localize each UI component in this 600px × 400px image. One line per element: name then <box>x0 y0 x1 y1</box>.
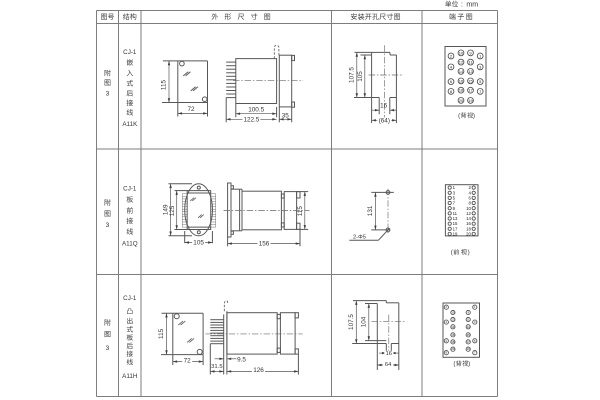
svg-text:126: 126 <box>253 367 264 374</box>
svg-text:13: 13 <box>467 325 470 329</box>
svg-text:10: 10 <box>451 311 454 315</box>
svg-text:131: 131 <box>367 205 374 216</box>
svg-text:(64): (64) <box>379 117 390 124</box>
svg-text:19: 19 <box>467 347 470 351</box>
svg-text:15: 15 <box>468 78 473 83</box>
svg-text:19: 19 <box>468 98 473 103</box>
svg-text:72: 72 <box>184 358 192 365</box>
svg-text:14: 14 <box>451 325 454 329</box>
svg-text:12: 12 <box>459 60 464 65</box>
svg-text:64: 64 <box>385 362 392 368</box>
svg-text:16: 16 <box>386 351 392 357</box>
svg-text:3: 3 <box>106 90 110 97</box>
svg-text:20: 20 <box>466 232 471 237</box>
svg-text:104: 104 <box>361 316 368 327</box>
svg-text:17: 17 <box>467 340 470 344</box>
svg-text:20: 20 <box>451 347 454 351</box>
svg-text:A11H: A11H <box>122 373 138 380</box>
svg-text:18: 18 <box>459 88 464 93</box>
svg-text:A11Q: A11Q <box>122 240 138 247</box>
svg-text:105: 105 <box>193 240 204 247</box>
svg-text:20: 20 <box>459 98 464 103</box>
svg-text:CJ-1: CJ-1 <box>123 49 137 56</box>
svg-text:72: 72 <box>187 106 195 113</box>
svg-text:CJ-1: CJ-1 <box>123 295 137 302</box>
svg-text:2-Φ5: 2-Φ5 <box>353 234 366 240</box>
svg-text:125: 125 <box>169 205 176 216</box>
svg-text:122.5: 122.5 <box>243 117 259 124</box>
svg-text:16: 16 <box>451 333 454 337</box>
svg-text:13: 13 <box>468 69 473 74</box>
svg-text:31.5: 31.5 <box>211 364 223 370</box>
svg-text:18: 18 <box>451 340 454 344</box>
svg-text:19: 19 <box>453 232 458 237</box>
svg-text:A11K: A11K <box>122 121 138 128</box>
svg-text:15: 15 <box>467 333 470 337</box>
svg-text:mm: mm <box>466 1 478 8</box>
svg-text:17: 17 <box>468 88 473 93</box>
svg-text:): ) <box>468 249 470 256</box>
svg-text:CJ-1: CJ-1 <box>123 186 137 193</box>
svg-text:11: 11 <box>467 318 470 322</box>
svg-text:115: 115 <box>297 206 304 217</box>
svg-text:107.5: 107.5 <box>348 314 355 330</box>
svg-text:16: 16 <box>459 78 464 83</box>
svg-text:14: 14 <box>459 69 464 74</box>
svg-text:): ) <box>473 113 475 120</box>
svg-text:10: 10 <box>459 50 464 55</box>
svg-text:16: 16 <box>380 103 388 110</box>
svg-text:3: 3 <box>106 345 110 352</box>
svg-text:115: 115 <box>161 79 168 90</box>
svg-text:156: 156 <box>259 241 270 248</box>
svg-text:35: 35 <box>282 112 290 119</box>
svg-text:): ) <box>468 361 470 368</box>
svg-text:105: 105 <box>357 71 364 82</box>
svg-text:3: 3 <box>106 222 110 229</box>
svg-text:100.5: 100.5 <box>248 106 264 113</box>
svg-text:107.5: 107.5 <box>349 67 356 83</box>
svg-text:115: 115 <box>158 328 165 339</box>
svg-text:9.5: 9.5 <box>237 357 246 364</box>
svg-text:12: 12 <box>451 318 454 322</box>
svg-text::: : <box>461 1 463 8</box>
